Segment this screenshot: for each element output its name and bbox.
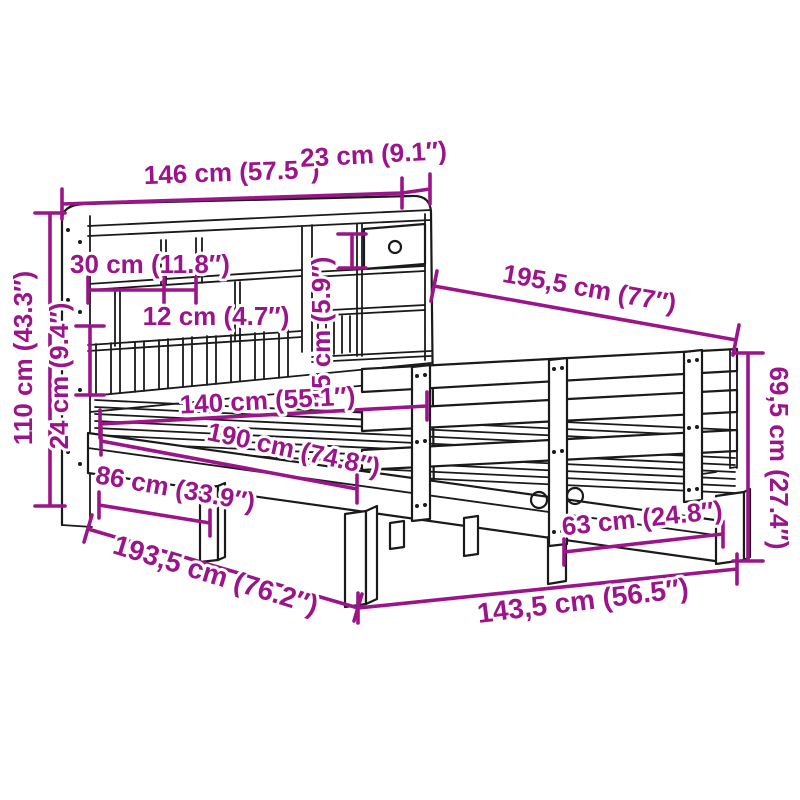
dim-label-top-depth: 23 cm (9.1″)	[299, 135, 447, 173]
rail-post	[412, 365, 430, 521]
dim-label-assembled-depth: 195,5 cm (77″)	[500, 258, 678, 318]
dim-label-frame-width: 143,5 cm (56.5″)	[475, 572, 690, 629]
bed-dimension-diagram: 146 cm (57.5″) 23 cm (9.1″) 30 cm (11.8″…	[0, 0, 800, 800]
dim-label-top-width: 146 cm (57.5″)	[143, 154, 320, 190]
rail-post	[684, 350, 702, 502]
dim-label-rail-height: 69,5 cm (27.4″)	[764, 366, 794, 549]
dim-label-headboard-height: 110 cm (43.3″)	[8, 271, 38, 445]
diagram-canvas: 146 cm (57.5″) 23 cm (9.1″) 30 cm (11.8″…	[0, 0, 800, 800]
dim-label-divider-gap: 12 cm (4.7″)	[143, 301, 290, 331]
dim-label-mattress-width: 140 cm (55.1″)	[179, 380, 356, 419]
headboard-drawer	[364, 224, 425, 269]
dim-label-compartment-width: 30 cm (11.8″)	[70, 249, 230, 279]
dim-label-shelf-section-height: 24 cm (9.4″)	[44, 303, 74, 450]
